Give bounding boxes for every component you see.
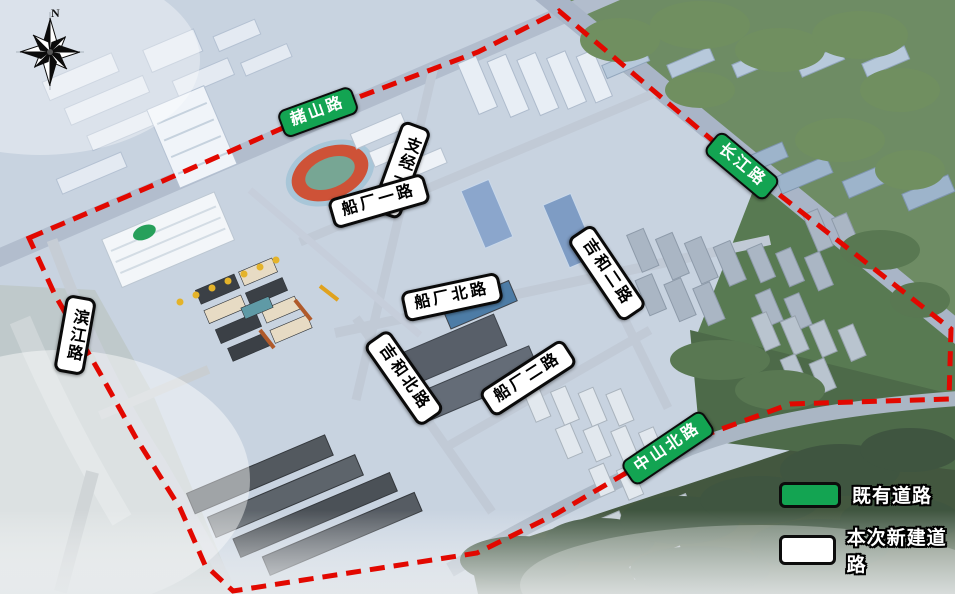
compass-rose-icon (14, 6, 86, 92)
existing-road-swatch (779, 482, 841, 508)
legend-label-existing-roads: 既有道路 (852, 481, 932, 508)
legend-item-existing-roads: 既有道路 (779, 481, 955, 508)
legend-label-new-roads: 本次新建道路 (847, 523, 955, 577)
planning-map: N (0, 0, 955, 594)
legend-item-new-roads: 本次新建道路 (779, 523, 955, 577)
compass-rose: N (14, 6, 86, 92)
compass-north-label: N (51, 6, 60, 21)
new-road-swatch (779, 535, 836, 565)
legend: 既有道路 本次新建道路 (779, 481, 955, 592)
